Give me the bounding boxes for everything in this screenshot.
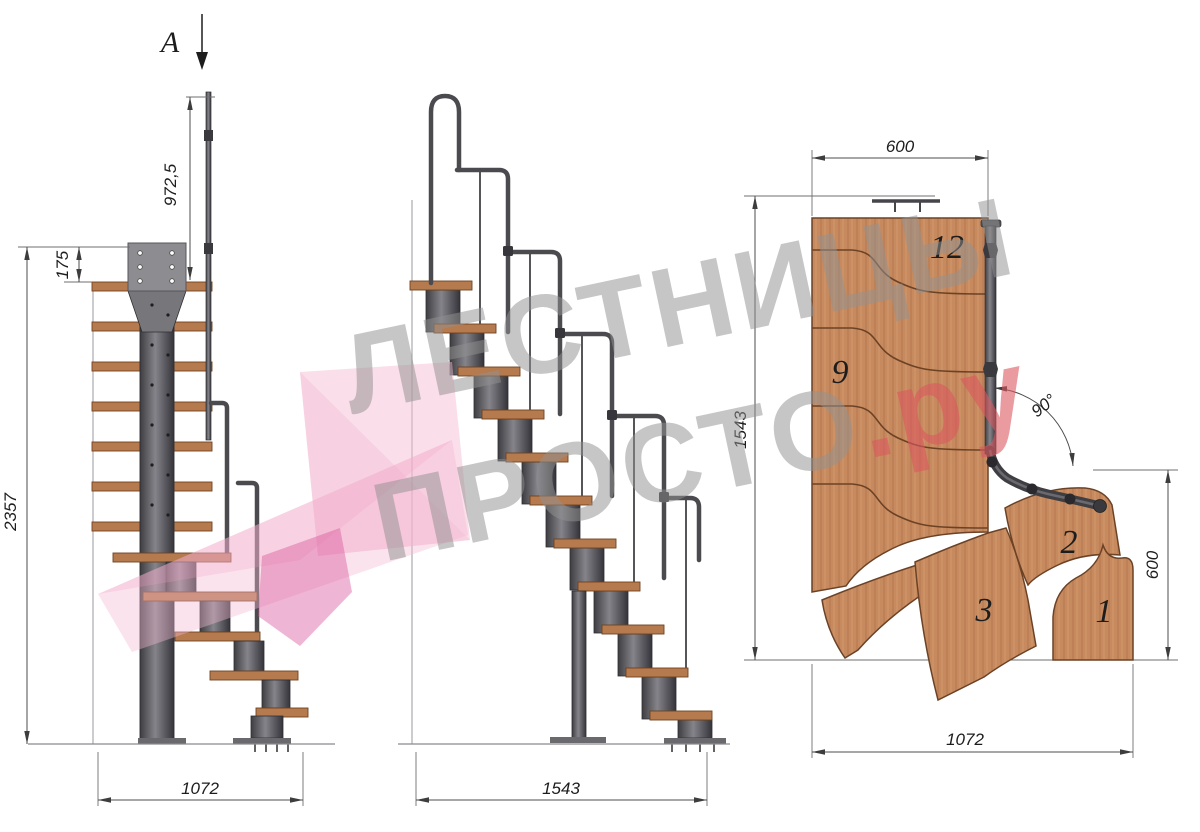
section-marker-label: A — [159, 26, 180, 59]
plan-wall-plate — [872, 201, 940, 212]
section-marker: A — [159, 14, 208, 70]
plan-upper-flight — [812, 218, 988, 592]
plan-step-label-9: 9 — [832, 354, 849, 391]
dim-plan-bottom-width-value: 1072 — [946, 730, 984, 749]
plan-step-label-1: 1 — [1096, 593, 1113, 630]
drawing-svg: A 972,5 175 2357 1072 — [0, 0, 1200, 832]
dim-side-width: 1072 — [98, 752, 303, 806]
section-arrow-head — [196, 52, 208, 70]
dim-plan-turn-angle-value: 90° — [1028, 390, 1060, 421]
dim-side-width-value: 1072 — [181, 779, 219, 798]
side-elevation-view: A 972,5 175 2357 1072 — [1, 14, 335, 806]
plan-step-label-2: 2 — [1061, 524, 1078, 561]
dim-side-handrail-height-value: 972,5 — [161, 163, 180, 206]
dim-plan-left-length-value: 1543 — [731, 411, 750, 449]
dim-side-top-plate: 175 — [18, 247, 130, 282]
side-foot-plate — [233, 738, 291, 744]
dim-side-total-height: 2357 — [1, 247, 27, 744]
staircase-drawing: A 972,5 175 2357 1072 — [0, 0, 1200, 832]
plan-step-label-12: 12 — [930, 229, 964, 266]
dim-front-length: 1543 — [416, 752, 707, 806]
side-central-column — [140, 291, 174, 744]
dim-side-top-plate-value: 175 — [53, 250, 72, 279]
dim-plan-right-depth-value: 600 — [1143, 550, 1162, 579]
plan-view: 12 9 3 2 1 600 1543 600 1072 — [731, 137, 1178, 758]
front-handrail — [431, 96, 699, 668]
dim-side-total-height-value: 2357 — [1, 493, 20, 532]
plan-step-label-3: 3 — [975, 592, 993, 629]
dim-plan-top-width-value: 600 — [886, 137, 915, 156]
dim-plan-turn-angle: 90° — [994, 388, 1073, 466]
dim-front-length-value: 1543 — [542, 779, 580, 798]
side-top-mounting-plate — [128, 243, 186, 291]
dim-plan-top-width: 600 — [812, 137, 988, 216]
plan-handrail — [981, 220, 1107, 513]
side-column-base — [138, 738, 186, 744]
